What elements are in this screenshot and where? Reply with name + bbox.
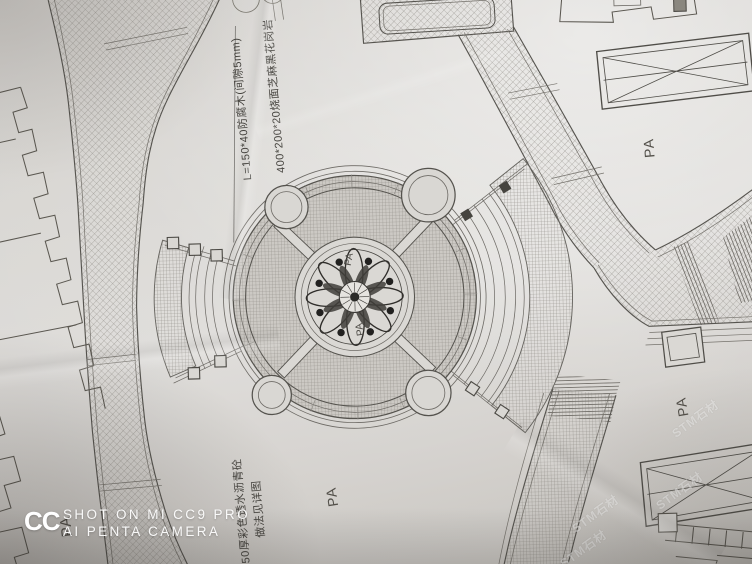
pa-label-plaza-bottom: PA <box>354 322 367 336</box>
bottom-right-buildings <box>654 347 752 564</box>
ramp-rect-top <box>596 33 752 109</box>
pa-label-bottom-left: PA <box>57 515 76 538</box>
blueprint-photo: L=150*40防腐木(间隙5mm) 400*200*20烧面芝麻黑花岗岩 50… <box>0 0 752 564</box>
planter-square <box>662 327 705 367</box>
pa-label-plaza-top: PA <box>343 252 356 266</box>
pa-label-bottom-center: PA <box>322 486 341 508</box>
site-plan-drawing <box>0 0 752 564</box>
top-right-buildings <box>559 0 697 24</box>
pa-label-top-right: PA <box>640 138 658 159</box>
left-walkway <box>48 0 236 564</box>
